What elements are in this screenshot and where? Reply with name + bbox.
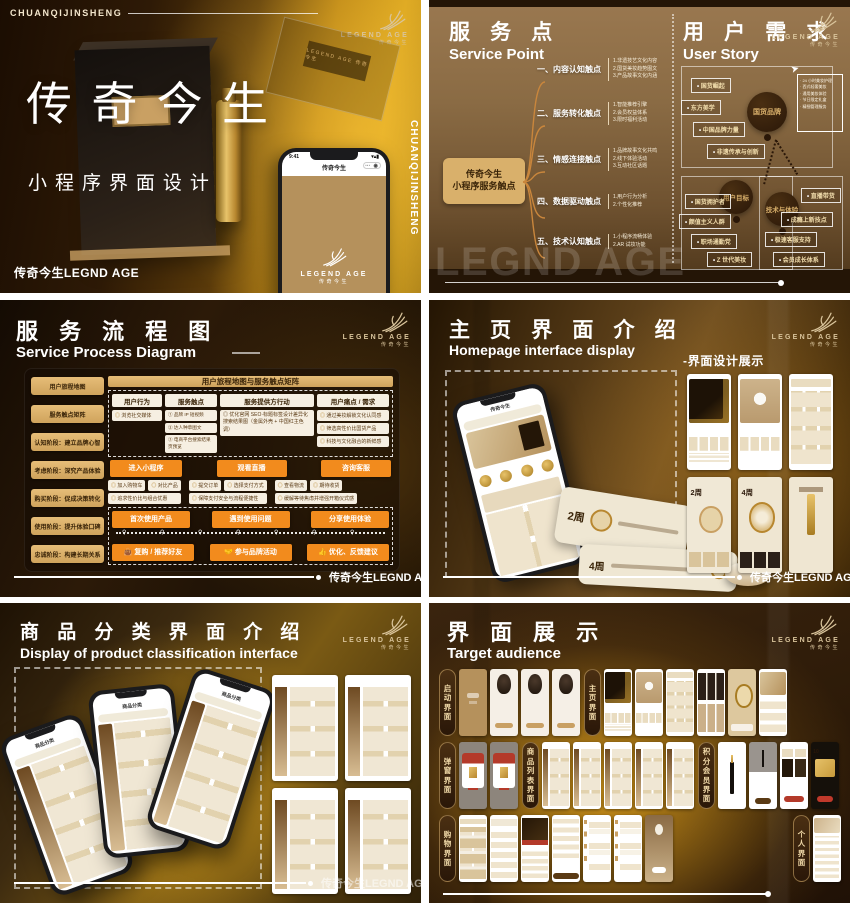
app-screen-splash xyxy=(459,669,487,736)
journey-matrix-card: 用户旅程地图服务触点矩阵认知阶段：建立品牌心智考虑阶段：深究产品体验购买阶段：促… xyxy=(24,368,400,572)
bottom-rule-dot xyxy=(765,891,771,897)
cover-kicker-text: CHUANQIJINSHENG xyxy=(10,8,122,18)
matrix-header-cell: 用户行为 xyxy=(112,394,162,407)
story-tag: 颜值主义人群 xyxy=(679,214,731,229)
miniprogram-capsule: ⋯ ◉ xyxy=(363,162,381,169)
branch-label: 一、内容认知触点 xyxy=(537,64,601,75)
story-tag: 国货崛起 xyxy=(691,78,731,93)
classification-title-en: Display of product classification interf… xyxy=(20,645,298,661)
gallery-group: 主页界面 xyxy=(584,669,787,736)
action-button: 👍 优化、反馈建议 xyxy=(307,544,389,561)
app-screen-faces xyxy=(697,669,725,736)
mindmap-branch: 三、情感连接触点1.品牌故事文化共鸣2.线下体验活动3.互动社区话题 xyxy=(537,148,657,171)
panel-service-point: 服 务 点 Service Point 用 户 需 求 User Story L… xyxy=(429,0,850,293)
app-screen-popup-red xyxy=(490,742,518,809)
provider-action-box: ◎ 优化官网 SEO·标题标签设计差异化搜索结果图（金属外壳 + 中国红主色调） xyxy=(220,410,314,436)
app-screen-hero-tan xyxy=(759,669,787,736)
user-story-title-en: User Story xyxy=(683,46,759,63)
story-tag: 中国品牌力量 xyxy=(693,122,745,137)
logo-sub: 传奇今生 xyxy=(772,644,840,651)
gallery-pill-label: 商品列表界面 xyxy=(522,742,539,809)
logo-text: LEGEND AGE xyxy=(343,334,411,341)
purchase-group: 加入购物车对比产品追求性价比与组合优惠 xyxy=(108,480,181,504)
gallery-title-en: Target audience xyxy=(447,645,561,662)
cover-phone-screen: 9:41 ▾▴▮ 传奇今生 ⋯ ◉ LEGEND AGE 传奇今生 xyxy=(282,152,386,293)
purchase-group: 查看物流期待收货缓解等待焦虑并增强开箱仪式感 xyxy=(275,480,357,504)
matrix-header-cell: 服务触点 xyxy=(165,394,217,407)
app-screen-member-lipstick xyxy=(718,742,746,809)
story-tag: 非遗传承与创新 xyxy=(707,144,765,159)
gallery-group: 启动界面 xyxy=(439,669,580,736)
branch-sub-item: 3.产品故事文化内涵 xyxy=(613,73,657,81)
app-screen-popup-red xyxy=(459,742,487,809)
app-screen-face xyxy=(490,669,518,736)
branch-sub-item: 1.品牌故事文化共鸣 xyxy=(613,148,657,156)
gallery-pill-label: 主页界面 xyxy=(584,669,601,736)
app-screen-promo-dark xyxy=(521,815,549,882)
app-screen-coupon-white xyxy=(780,742,808,809)
branch-label: 三、情感连接触点 xyxy=(537,154,601,165)
journey-stage-button: 使用阶段：提升体验口碑 xyxy=(31,517,104,535)
action-button: 咨询客服 xyxy=(321,460,391,477)
phone-app-title: 传奇今生 xyxy=(322,163,346,172)
action-button: 👜 复购 / 推荐好友 xyxy=(112,544,194,561)
gallery-pill-label: 启动界面 xyxy=(439,669,456,736)
app-screen-category xyxy=(666,742,694,809)
panel-homepage: 主 页 界 面 介 绍 Homepage interface display L… xyxy=(429,300,850,597)
screen-label: 4周 xyxy=(742,487,753,498)
purchase-note-tag: 缓解等待焦虑并增强开箱仪式感 xyxy=(275,493,357,504)
app-screen-hero-jar xyxy=(635,669,663,736)
app-screen-category xyxy=(604,742,632,809)
cover-side-text: CHUANQIJINSHENG xyxy=(403,120,419,290)
story-tag: 东方美学 xyxy=(681,100,721,115)
story-tag: 国货拥护者 xyxy=(685,194,731,209)
bubble-connector-dot xyxy=(733,216,740,223)
matrix-awareness-box: 用户行为服务触点服务提供方行动用户痛点 / 需求浏览社交媒体① 品牌 IP 短视… xyxy=(108,390,393,457)
branch-sub-item: 2.线下体验活动 xyxy=(613,156,657,164)
branch-sub-item: 3.限时福利活动 xyxy=(613,117,647,125)
logo-sub: 传奇今生 xyxy=(772,341,840,348)
branch-sub-item: 2.会员权益体系 xyxy=(613,110,647,118)
app-screen-category xyxy=(272,675,338,781)
footer-brand: 传奇今生LEGND AGE xyxy=(329,569,421,585)
cover-footer-brand: 传奇今生LEGND AGE xyxy=(14,264,139,281)
cover-title: 传奇今生 xyxy=(26,68,287,134)
bottom-rule xyxy=(445,282,780,283)
logo-sub: 传奇今生 xyxy=(343,644,411,651)
journey-stage-button: 用户旅程地图 xyxy=(31,377,104,395)
note-item: · 精细管理服务 xyxy=(800,104,840,110)
consider-actions-row: 进入小程序观看直播咨询客服 xyxy=(108,460,393,477)
touchpoint-tag: ③ 电商平台搜索结果页预览 xyxy=(165,435,217,452)
action-button: 分享使用体验 xyxy=(311,511,389,528)
journey-stage-button: 购买阶段：促成决策转化 xyxy=(31,489,104,507)
process-title-en: Service Process Diagram xyxy=(16,344,196,361)
gallery-rows: 启动界面主页界面弹窗界面商品列表界面积分会员界面10购物界面个人界面 xyxy=(439,669,841,882)
branch-sub-item: 1.非遗技艺文化内容 xyxy=(613,58,657,66)
poster-grid: CHUANQIJINSHENG LEGEND AGE传奇今生 LEGEND AG… xyxy=(0,0,850,903)
journey-matrix: 用户旅程地图与服务触点矩阵用户行为服务触点服务提供方行动用户痛点 / 需求浏览社… xyxy=(108,376,393,564)
branch-sub-items: 1.非遗技艺文化内容2.国货美妆趋势图文3.产品故事文化内涵 xyxy=(608,58,657,81)
gallery-row: 启动界面主页界面 xyxy=(439,669,841,736)
app-screen-grid xyxy=(789,374,833,470)
branch-sub-items: 1.用户行为分析2.个性化推荐 xyxy=(608,194,647,209)
legend-age-logo-icon xyxy=(375,8,409,32)
logo-text: LEGEND AGE xyxy=(343,637,411,644)
story-tag: 极速客服支持 xyxy=(765,232,817,247)
matrix-header-cell: 服务提供方行动 xyxy=(220,394,314,407)
screen-label: 2周 xyxy=(691,487,702,498)
footer-brand: 传奇今生LEGND AGE xyxy=(750,569,850,585)
classification-title-cn: 商 品 分 类 界 面 介 绍 xyxy=(20,617,306,644)
app-screen-banner4w: 4周 xyxy=(738,477,782,573)
gallery-pill-label: 弹窗界面 xyxy=(439,742,456,809)
app-screen-coupon-dark: 10 xyxy=(811,742,839,809)
touchpoint-tag: ② 达人种草图文 xyxy=(165,423,217,434)
app-screen-feed xyxy=(459,815,487,882)
app-screen-checkout xyxy=(552,815,580,882)
logo-sub: 传奇今生 xyxy=(343,341,411,348)
action-button: 🤝 参与品牌活动 xyxy=(210,544,292,561)
panel-process-diagram: 服 务 流 程 图 Service Process Diagram LEGEND… xyxy=(0,300,421,597)
loyalty-actions-row: 👜 复购 / 推荐好友🤝 参与品牌活动👍 优化、反馈建议 xyxy=(112,544,389,561)
need-tag: 科技与文化融合的新鲜感 xyxy=(317,436,389,447)
mindmap-branch: 二、服务转化触点1.智能推荐引擎2.会员权益体系3.限时福利活动 xyxy=(537,102,647,125)
phone-logo-text: LEGEND AGE xyxy=(300,271,367,278)
story-tag: Z 世代美妆 xyxy=(707,252,752,267)
legend-age-logo-icon xyxy=(806,310,840,334)
app-screen-category xyxy=(345,675,411,781)
story-note-box: · 24 小时美妆护理· 西式轻奢美妆· 通用美妆体验· 节日限定礼盒· 精细管… xyxy=(797,74,843,132)
mindmap-branch: 四、数据驱动触点1.用户行为分析2.个性化推荐 xyxy=(537,194,647,209)
app-screen-face xyxy=(521,669,549,736)
need-tag: 筛选高性价比国货产品 xyxy=(317,423,389,434)
phone-notch xyxy=(310,152,358,160)
legend-age-logo-icon xyxy=(319,246,349,268)
cover-subtitle: 小程序界面设计 xyxy=(28,168,217,195)
purchase-groups-row: 加入购物车对比产品追求性价比与组合优惠提交订单选择支付方式保障支付安全与流程便捷… xyxy=(108,480,393,504)
panel-gallery: 界 面 展 示 Target audience LEGEND AGE传奇今生 启… xyxy=(429,603,850,903)
classification-screens-grid xyxy=(272,675,411,894)
app-screen-hero-dark xyxy=(687,374,731,470)
brand-logo: LEGEND AGE传奇今生 xyxy=(772,613,840,651)
app-screen-list xyxy=(490,815,518,882)
branch-sub-item: 1.智能推荐引擎 xyxy=(613,102,647,110)
purchase-tag: 对比产品 xyxy=(148,480,180,491)
design-display-badge: -界面设计展示 xyxy=(683,352,764,369)
service-point-title-cn: 服 务 点 xyxy=(449,16,559,46)
branch-label: 四、数据驱动触点 xyxy=(537,196,601,207)
phone-logo-sub: 传奇今生 xyxy=(319,278,349,285)
purchase-tag: 提交订单 xyxy=(189,480,221,491)
app-screen-grid xyxy=(666,669,694,736)
app-screen-confirm xyxy=(645,815,673,882)
legend-age-logo-icon xyxy=(806,613,840,637)
cover-kicker: CHUANQIJINSHENG xyxy=(10,8,318,18)
legend-age-logo-icon xyxy=(806,10,840,34)
phone-splash-body: LEGEND AGE 传奇今生 xyxy=(282,176,386,293)
matrix-title-bar: 用户旅程地图与服务触点矩阵 xyxy=(108,376,393,387)
screen-label: 10 xyxy=(813,749,819,755)
homepage-title-cn: 主 页 界 面 介 绍 xyxy=(449,314,683,344)
purchase-note-tag: 追求性价比与组合优惠 xyxy=(108,493,181,504)
journey-stage-button: 服务触点矩阵 xyxy=(31,405,104,423)
touchpoint-tag: ① 品牌 IP 短视频 xyxy=(165,410,217,421)
dotted-divider xyxy=(672,14,674,263)
logo-text: LEGEND AGE xyxy=(772,637,840,644)
action-button: 首次使用产品 xyxy=(112,511,190,528)
behavior-tag: 浏览社交媒体 xyxy=(112,410,162,421)
need-tag: 通过美妆解锁文化认同感 xyxy=(317,410,389,421)
watermark-text: LEGND AGE xyxy=(435,240,686,285)
homepage-title-en: Homepage interface display xyxy=(449,342,635,358)
app-screen-detail-cream xyxy=(789,477,833,573)
story-tag: 成瘾上新技点 xyxy=(781,212,833,227)
branch-sub-item: 1.用户行为分析 xyxy=(613,194,647,202)
brand-logo: LEGEND AGE传奇今生 xyxy=(343,613,411,651)
journey-stage-button: 忠诚阶段：构建长期关系 xyxy=(31,545,104,563)
journey-stage-button: 考虑阶段：深究产品体验 xyxy=(31,461,104,479)
matrix-awareness-row: 浏览社交媒体① 品牌 IP 短视频② 达人种草图文③ 电商平台搜索结果页预览◎ … xyxy=(112,410,389,453)
brand-logo: LEGEND AGE传奇今生 xyxy=(772,10,840,48)
legend-age-logo-icon xyxy=(377,310,411,334)
use-actions-row: 首次使用产品遇到使用问题分享使用体验 xyxy=(112,511,389,528)
purchase-group: 提交订单选择支付方式保障支付安全与流程便捷性 xyxy=(189,480,267,504)
bubble-connector-dot xyxy=(764,134,771,141)
purchase-tag: 查看物流 xyxy=(275,480,307,491)
purchase-tag: 选择支付方式 xyxy=(224,480,266,491)
action-button: 遇到使用问题 xyxy=(212,511,290,528)
gallery-group: 商品列表界面 xyxy=(522,742,694,809)
app-screen-ring xyxy=(728,669,756,736)
story-tag: 职场通勤党 xyxy=(691,234,737,249)
branch-sub-item: 2.国货美妆趋势图文 xyxy=(613,66,657,74)
app-screen-member-dark xyxy=(749,742,777,809)
app-screen-banner2w: 2周 xyxy=(687,477,731,573)
gallery-row: 购物界面个人界面 xyxy=(439,815,841,882)
legend-age-logo-icon xyxy=(377,613,411,637)
journey-stage-button: 认知阶段：建立品牌心智 xyxy=(31,433,104,451)
branch-sub-items: 1.品牌故事文化共鸣2.线下体验活动3.互动社区话题 xyxy=(608,148,657,171)
journey-dotted-path: ⚲⚲⚲⚲⚲⚲⚲ xyxy=(116,532,385,540)
purchase-note-tag: 保障支付安全与流程便捷性 xyxy=(189,493,267,504)
logo-sub: 传奇今生 xyxy=(772,41,840,48)
story-tag: 直播带货 xyxy=(801,188,841,203)
purchase-tag: 加入购物车 xyxy=(108,480,145,491)
footer-brand: 传奇今生LEGND AGE xyxy=(321,875,421,891)
action-button: 观看直播 xyxy=(217,460,287,477)
branch-sub-items: 1.智能推荐引擎2.会员权益体系3.限时福利活动 xyxy=(608,102,647,125)
gallery-pill-label: 个人界面 xyxy=(793,815,810,882)
gallery-pill-label: 积分会员界面 xyxy=(698,742,715,809)
panel-cover: CHUANQIJINSHENG LEGEND AGE传奇今生 LEGEND AG… xyxy=(0,0,421,293)
panel-classification: 商 品 分 类 界 面 介 绍 Display of product class… xyxy=(0,603,421,903)
app-screen-profile xyxy=(813,815,841,882)
bottom-rule-dot xyxy=(778,280,784,286)
app-screen-cart xyxy=(614,815,642,882)
kicker-line xyxy=(128,13,318,14)
matrix-header-row: 用户行为服务触点服务提供方行动用户痛点 / 需求 xyxy=(112,394,389,407)
gallery-pill-label: 购物界面 xyxy=(439,815,456,882)
gallery-group: 购物界面 xyxy=(439,815,673,882)
gallery-row: 弹窗界面商品列表界面积分会员界面10 xyxy=(439,742,841,809)
homepage-screens-grid: 2周4周 xyxy=(687,374,833,573)
app-screen-hero-jar xyxy=(738,374,782,470)
gallery-title-cn: 界 面 展 示 xyxy=(447,615,606,647)
app-screen-face xyxy=(552,669,580,736)
process-title-cn: 服 务 流 程 图 xyxy=(16,314,218,346)
branch-label: 二、服务转化触点 xyxy=(537,108,601,119)
app-screen-category xyxy=(573,742,601,809)
app-screen-category xyxy=(635,742,663,809)
journey-stage-column: 用户旅程地图服务触点矩阵认知阶段：建立品牌心智考虑阶段：深究产品体验购买阶段：促… xyxy=(31,376,108,564)
brand-logo: LEGEND AGE传奇今生 xyxy=(772,310,840,348)
mindmap-center-node: 传奇今生 小程序服务触点 xyxy=(443,158,525,204)
action-button: 进入小程序 xyxy=(110,460,182,477)
story-tag: 会员成长体系 xyxy=(773,252,825,267)
bottom-rule xyxy=(443,893,769,895)
purchase-tag: 期待收货 xyxy=(310,480,342,491)
mindmap-branch: 一、内容认知触点1.非遗技艺文化内容2.国货美妆趋势图文3.产品故事文化内涵 xyxy=(537,58,657,81)
gallery-group: 个人界面 xyxy=(793,815,841,882)
gallery-group: 积分会员界面10 xyxy=(698,742,839,809)
brand-logo: LEGEND AGE传奇今生 xyxy=(343,310,411,348)
cover-phone-mockup: 9:41 ▾▴▮ 传奇今生 ⋯ ◉ LEGEND AGE 传奇今生 xyxy=(278,148,390,293)
logo-text: LEGEND AGE xyxy=(772,334,840,341)
branch-sub-item: 2.个性化推荐 xyxy=(613,202,647,210)
story-bubble: 国货品牌 xyxy=(747,92,787,132)
gallery-group: 弹窗界面 xyxy=(439,742,518,809)
app-screen-category xyxy=(542,742,570,809)
logo-text: LEGEND AGE xyxy=(772,34,840,41)
branch-sub-item: 3.互动社区话题 xyxy=(613,163,657,171)
matrix-loyalty-box: 首次使用产品遇到使用问题分享使用体验⚲⚲⚲⚲⚲⚲⚲👜 复购 / 推荐好友🤝 参与… xyxy=(108,507,393,565)
app-screen-cart xyxy=(583,815,611,882)
app-screen-hero-dark xyxy=(604,669,632,736)
matrix-header-cell: 用户痛点 / 需求 xyxy=(317,394,389,407)
